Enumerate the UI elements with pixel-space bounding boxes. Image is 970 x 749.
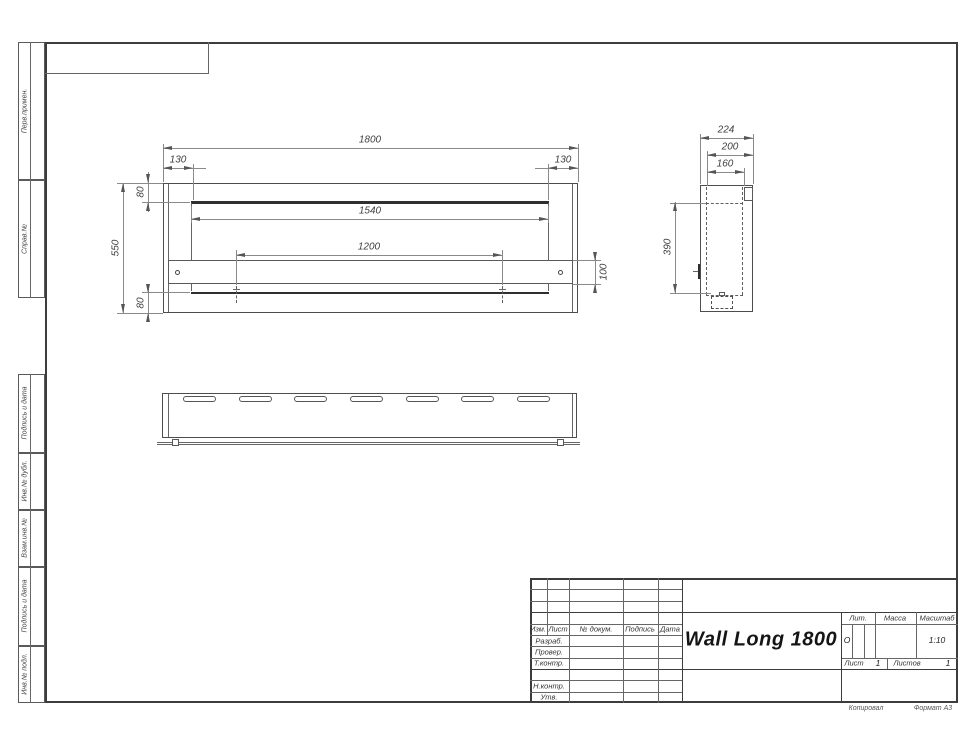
tb-sheets-label: Листов <box>893 659 920 668</box>
extension-line <box>502 250 503 285</box>
side-hidden-line <box>706 203 743 204</box>
tb-line <box>875 612 876 658</box>
dim-390: 390 <box>663 239 674 256</box>
tb-line <box>569 578 570 703</box>
dim-arrow <box>744 136 753 140</box>
vent-slot <box>350 396 383 402</box>
copied-label: Копировал <box>849 705 884 712</box>
tb-line <box>530 601 682 602</box>
tb-row-nkontr: Н.контр. <box>533 682 565 691</box>
tb-col-docnum: № докум. <box>579 625 612 634</box>
front-opening-top-edge <box>191 201 549 204</box>
strip-divider <box>30 510 31 567</box>
strip-divider <box>30 646 31 703</box>
strip-label: Инв.№ дубл. <box>22 460 29 501</box>
dimension-line <box>236 255 502 256</box>
tb-line <box>530 589 682 590</box>
dim-arrow <box>569 146 578 150</box>
dimension-line <box>163 148 578 149</box>
tb-line <box>623 578 624 703</box>
dim-arrow <box>146 313 150 322</box>
tb-sheets-value: 1 <box>946 658 951 668</box>
dim-130-right: 130 <box>555 155 572 166</box>
mount-hole-left <box>175 270 180 275</box>
dim-arrow <box>146 202 150 211</box>
dim-arrow <box>146 174 150 183</box>
front-mount-bar <box>168 260 573 284</box>
vent-slot <box>517 396 550 402</box>
dim-arrow <box>707 153 716 157</box>
tb-border <box>530 578 958 580</box>
side-hook-bracket <box>744 187 753 201</box>
dim-1540: 1540 <box>359 206 381 217</box>
dim-1200: 1200 <box>358 242 380 253</box>
tb-lit-value: О <box>844 635 851 645</box>
vent-slot <box>461 396 494 402</box>
stamp-box-line <box>208 42 209 73</box>
product-title: Wall Long 1800 <box>685 629 837 652</box>
dim-arrow <box>184 166 193 170</box>
dim-arrow <box>593 284 597 293</box>
vent-slot <box>239 396 272 402</box>
base-plate-line <box>157 442 580 443</box>
vent-slot <box>406 396 439 402</box>
tb-line <box>682 578 683 703</box>
dim-arrow <box>548 166 557 170</box>
dim-arrow <box>121 304 125 313</box>
dim-arrow <box>707 170 716 174</box>
strip-label: Взам.инв.№ <box>22 518 29 557</box>
tb-scale-label: Масштаб <box>919 614 954 623</box>
mount-mark-tick <box>233 289 240 290</box>
tb-col-podpis: Подпись <box>625 625 655 634</box>
dim-arrow <box>744 153 753 157</box>
extension-line <box>548 206 549 223</box>
base-plate-line <box>157 444 580 445</box>
tb-line <box>841 612 842 703</box>
tb-line <box>864 624 865 658</box>
extension-line <box>670 293 711 294</box>
dim-arrow <box>700 136 709 140</box>
front-opening-bottom-edge <box>191 292 549 294</box>
tb-line <box>887 658 888 670</box>
dim-arrow <box>121 183 125 192</box>
strip-divider <box>30 374 31 453</box>
drawing-sheet: Перв.примен. Справ.№ Подпись и дата Инв.… <box>0 0 970 749</box>
dimension-line <box>191 219 548 220</box>
dim-arrow <box>163 146 172 150</box>
dim-arrow <box>569 166 578 170</box>
strip-label: Справ.№ <box>22 224 29 254</box>
extension-line <box>700 134 701 184</box>
tb-col-data: Дата <box>660 625 680 634</box>
dim-arrow <box>593 252 597 261</box>
strip-label: Подпись и дата <box>22 387 29 440</box>
vent-slot <box>183 396 216 402</box>
tb-border <box>530 578 532 703</box>
dim-80-bottom: 80 <box>136 297 147 308</box>
base-foot <box>557 439 564 446</box>
dim-100: 100 <box>599 264 610 281</box>
tb-line <box>658 578 659 703</box>
tb-line <box>916 612 917 658</box>
dim-arrow <box>163 166 172 170</box>
tb-row-tkontr: Т.контр. <box>534 659 564 668</box>
tb-scale-value: 1:10 <box>929 635 946 645</box>
vent-slot <box>294 396 327 402</box>
dim-130-left: 130 <box>170 155 187 166</box>
base-foot <box>172 439 179 446</box>
tb-line <box>841 624 958 625</box>
side-burner-box-hidden <box>711 296 733 309</box>
extension-line <box>744 168 745 186</box>
side-burner-pin <box>719 292 725 296</box>
tb-sheet-label: Лист <box>844 659 863 668</box>
strip-divider <box>30 453 31 510</box>
format-label: Формат А3 <box>914 705 952 712</box>
dim-1800: 1800 <box>359 135 381 146</box>
strip-label: Перв.примен. <box>22 89 29 134</box>
strip-divider <box>30 567 31 646</box>
dim-80-top: 80 <box>136 186 147 197</box>
extension-line <box>117 313 163 314</box>
dim-224: 224 <box>718 125 735 136</box>
sheet-frame <box>45 42 958 703</box>
mount-hole-right <box>558 270 563 275</box>
mount-mark-tick <box>499 289 506 290</box>
dim-160: 160 <box>717 159 734 170</box>
extension-line <box>578 144 579 182</box>
dimension-line <box>675 202 676 293</box>
dim-arrow <box>236 253 245 257</box>
tb-col-izm: Изм. <box>530 625 546 634</box>
dim-550: 550 <box>111 240 122 257</box>
dim-arrow <box>539 217 548 221</box>
tb-row-razrab: Разраб. <box>535 636 562 645</box>
dim-arrow <box>673 284 677 293</box>
dim-200: 200 <box>722 142 739 153</box>
extension-line <box>573 284 601 285</box>
tb-line <box>852 624 853 658</box>
bottom-wall-line <box>168 394 169 437</box>
dimension-line <box>123 183 124 313</box>
dim-arrow <box>146 284 150 293</box>
strip-divider <box>30 180 31 298</box>
dim-arrow <box>191 217 200 221</box>
strip-label: Инв.№ подл. <box>22 653 29 695</box>
extension-line <box>573 260 601 261</box>
dim-arrow <box>735 170 744 174</box>
side-wall-clip-tick <box>693 271 698 272</box>
dim-arrow <box>493 253 502 257</box>
tb-sheet-value: 1 <box>876 658 881 668</box>
extension-line <box>193 164 194 200</box>
strip-divider <box>30 42 31 180</box>
extension-line <box>753 134 754 184</box>
tb-line <box>530 669 958 670</box>
bottom-wall-line <box>572 394 573 437</box>
tb-mass-label: Масса <box>884 614 906 623</box>
stamp-box-line <box>45 73 209 74</box>
tb-col-list: Лист <box>548 625 567 634</box>
tb-row-utv: Утв. <box>540 693 557 702</box>
front-wall-line <box>572 184 573 312</box>
tb-row-prover: Провер. <box>535 648 563 657</box>
tb-lit-label: Лит. <box>849 614 867 623</box>
dim-arrow <box>673 202 677 211</box>
strip-label: Подпись и дата <box>22 580 29 633</box>
